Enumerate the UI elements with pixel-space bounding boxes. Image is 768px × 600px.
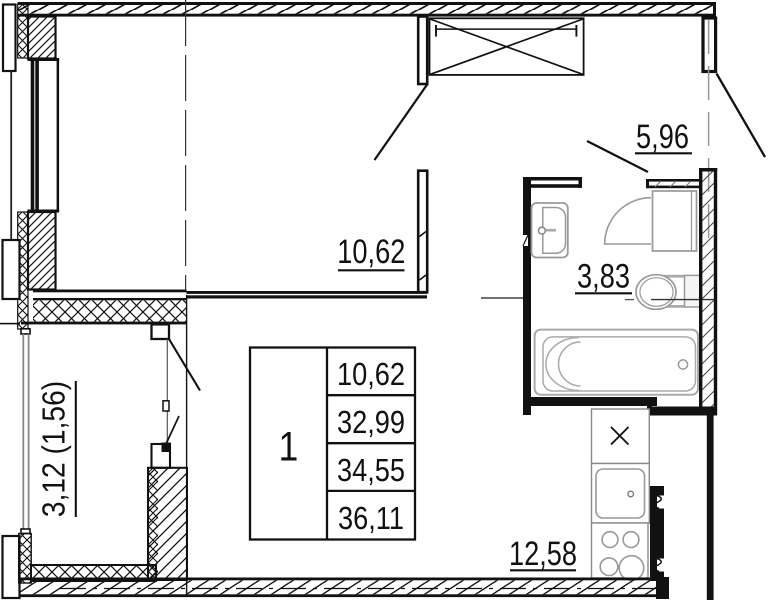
svg-text:5,96: 5,96	[636, 118, 689, 156]
svg-text:10,62: 10,62	[337, 356, 405, 392]
svg-text:3,83: 3,83	[577, 258, 630, 296]
svg-text:36,11: 36,11	[338, 500, 404, 536]
svg-text:32,99: 32,99	[337, 404, 405, 440]
svg-text:10,62: 10,62	[337, 233, 405, 271]
svg-text:3,12 (1,56): 3,12 (1,56)	[36, 381, 72, 517]
svg-text:34,55: 34,55	[337, 452, 405, 488]
svg-text:1: 1	[279, 423, 299, 470]
svg-text:12,58: 12,58	[509, 535, 577, 573]
